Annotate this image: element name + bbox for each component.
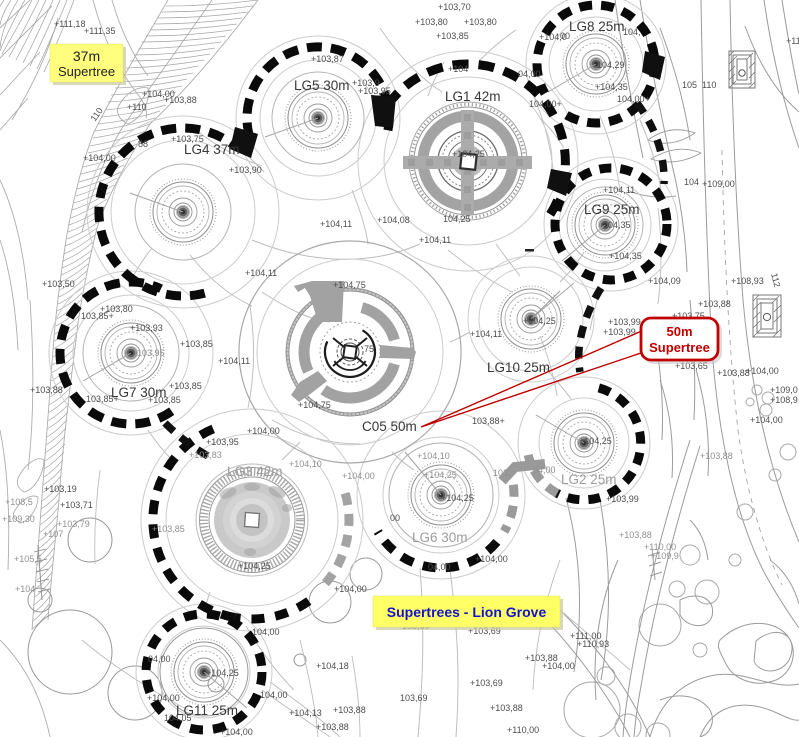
svg-text:+104,11: +104,11 [245,268,277,278]
svg-text:+108,5: +108,5 [5,497,33,507]
svg-text:104: 104 [684,177,699,187]
svg-text:+104,13: +104,13 [289,708,322,718]
svg-text:105: 105 [682,80,697,90]
svg-text:Supertree: Supertree [58,64,115,79]
svg-text:+104,00: +104,00 [750,415,783,425]
svg-text:104,00: 104,00 [252,627,280,637]
svg-text:+103,88: +103,88 [698,299,731,309]
svg-text:50m: 50m [666,324,692,339]
svg-text:+110: +110 [127,102,147,112]
svg-text:+110,00: +110,00 [507,725,539,735]
svg-text:+104,00: +104,00 [247,426,280,436]
svg-text:+104,18: +104,18 [316,661,349,671]
svg-text:+103,99: +103,99 [608,317,641,327]
svg-text:+104,11: +104,11 [320,219,352,229]
svg-text:103,69: 103,69 [400,693,428,703]
svg-text:+104,25: +104,25 [579,436,612,446]
svg-text:+111,35: +111,35 [84,26,115,36]
svg-text:+104,25: +104,25 [523,316,556,326]
svg-text:+108,9: +108,9 [770,395,798,405]
svg-text:+104,00: +104,00 [334,584,367,594]
svg-text:+104,00: +104,00 [83,153,116,163]
svg-text:+104,10: +104,10 [417,451,450,461]
svg-text:+103,90: +103,90 [229,165,262,175]
svg-text:+103,88: +103,88 [717,368,750,378]
svg-text:+104,00: +104,00 [542,661,575,671]
svg-text:+104,11: +104,11 [470,329,502,339]
svg-text:+104,00: +104,00 [342,471,375,481]
svg-text:+109,00: +109,00 [702,179,735,189]
svg-text:+104,25: +104,25 [452,149,485,159]
svg-text:+104,00: +104,00 [746,366,779,376]
svg-text:04,00: 04,00 [533,465,556,475]
svg-text:+103,80: +103,80 [464,17,497,27]
svg-text:+103,71: +103,71 [60,500,93,510]
svg-text:104,00+: 104,00+ [617,94,650,104]
svg-text:+103,85: +103,85 [436,31,469,41]
svg-text:04,00: 04,00 [518,69,541,79]
svg-text:37m: 37m [73,48,100,64]
svg-text:LG10 25m: LG10 25m [487,360,550,375]
svg-text:+103,88: +103,88 [30,385,63,395]
svg-text:04,00: 04,00 [148,654,171,664]
svg-text:+104,25: +104,25 [238,561,271,571]
svg-text:104,29: 104,29 [597,60,625,70]
svg-text:+103,88: +103,88 [700,451,733,461]
svg-text:75: 75 [364,344,374,354]
svg-text:103,88+: 103,88+ [472,416,505,426]
svg-text:LG7 30m: LG7 30m [111,385,167,400]
svg-text:+104,25: +104,25 [424,470,457,480]
svg-text:+104,11: +104,11 [218,356,250,366]
svg-text:103,: 103, [493,468,511,478]
svg-text:+104,00: +104,00 [147,693,180,703]
svg-text:+104,00: +104,00 [220,727,253,737]
svg-text:+108,93: +108,93 [731,276,764,286]
svg-text:Supertrees - Lion Grove: Supertrees - Lion Grove [387,604,547,620]
svg-text:LG2 25m: LG2 25m [561,472,617,487]
svg-text:+103,70: +103,70 [438,2,471,12]
svg-text:+103,85: +103,85 [169,381,202,391]
svg-text:LG4 37m: LG4 37m [184,142,240,157]
svg-text:+105,5: +105,5 [14,554,42,564]
svg-text:04,00: 04,00 [428,562,451,572]
svg-text:LG11 25m: LG11 25m [176,703,238,718]
svg-text:+103,69: +103,69 [470,678,503,688]
svg-text:+109,30: +109,30 [2,514,35,524]
svg-text:103,85+: 103,85+ [81,311,114,321]
svg-text:104,00: 104,00 [260,690,288,700]
svg-text:+104,35: +104,35 [609,251,642,261]
svg-text:+103,88: +103,88 [164,95,197,105]
svg-text:104,: 104, [623,27,641,37]
svg-text:+109,0: +109,0 [770,385,798,395]
svg-text:C05 50m: C05 50m [362,419,417,434]
svg-text:104,25: 104,25 [443,214,471,224]
svg-text:+104,75: +104,75 [333,280,366,290]
svg-text:110: 110 [702,80,716,90]
svg-text:LG8 25m: LG8 25m [569,19,625,34]
svg-text:+103,88: +103,88 [316,722,349,732]
svg-text:+104: +104 [448,64,468,74]
svg-text:+11: +11 [786,36,799,46]
svg-text:+103,79: +103,79 [57,519,90,529]
svg-text:LG6 30m: LG6 30m [412,530,468,545]
svg-text:00: 00 [390,513,400,523]
svg-text:LG3 42m: LG3 42m [227,464,283,479]
svg-text:+104,08: +104,08 [377,215,410,225]
svg-text:+103,95: +103,95 [206,437,239,447]
svg-text:+104,00: +104,00 [475,554,508,564]
svg-text:103,95: 103,95 [137,348,165,358]
svg-text:104,35: 104,35 [603,220,631,230]
svg-text:+103,80: +103,80 [415,17,448,27]
svg-text:+103,83: +103,83 [189,450,222,460]
svg-text:+104: +104 [15,584,35,594]
svg-text:+103,93: +103,93 [130,323,163,333]
svg-text:+104,75: +104,75 [298,400,331,410]
svg-text:LG5 30m: LG5 30m [294,78,350,93]
svg-text:LG9 25m: LG9 25m [584,202,640,217]
svg-text:+103,19: +103,19 [44,484,77,494]
svg-text:+103,88: +103,88 [619,530,652,540]
svg-text:Supertree: Supertree [649,340,710,355]
svg-text:+104,11: +104,11 [603,185,635,195]
svg-text:+103,88: +103,88 [333,705,366,715]
svg-text:+104,09: +104,09 [648,276,681,286]
svg-text:+110,93: +110,93 [577,639,609,649]
svg-text:LG1 42m: LG1 42m [445,89,501,104]
svg-text:+104,11: +104,11 [419,235,451,245]
svg-text:+103,88: +103,88 [490,703,523,713]
svg-text:+104,35: +104,35 [595,82,628,92]
svg-text:88: 88 [138,139,148,149]
svg-text:+103,99: +103,99 [606,494,639,504]
svg-text:+104,25: +104,25 [441,493,474,503]
svg-text:+111,18: +111,18 [54,19,85,29]
svg-text:+104,10: +104,10 [289,459,322,469]
svg-text:+103,87: +103,87 [311,54,344,64]
svg-text:+103,50: +103,50 [42,279,75,289]
svg-text:+103,85: +103,85 [152,524,185,534]
svg-text:+109,9: +109,9 [651,551,679,561]
svg-text:+104,25: +104,25 [206,668,239,678]
svg-text:+103,85: +103,85 [180,339,213,349]
svg-text:+103,95: +103,95 [358,86,391,96]
svg-text:104,00+: 104,00+ [529,99,562,109]
svg-text:+107: +107 [43,529,63,539]
